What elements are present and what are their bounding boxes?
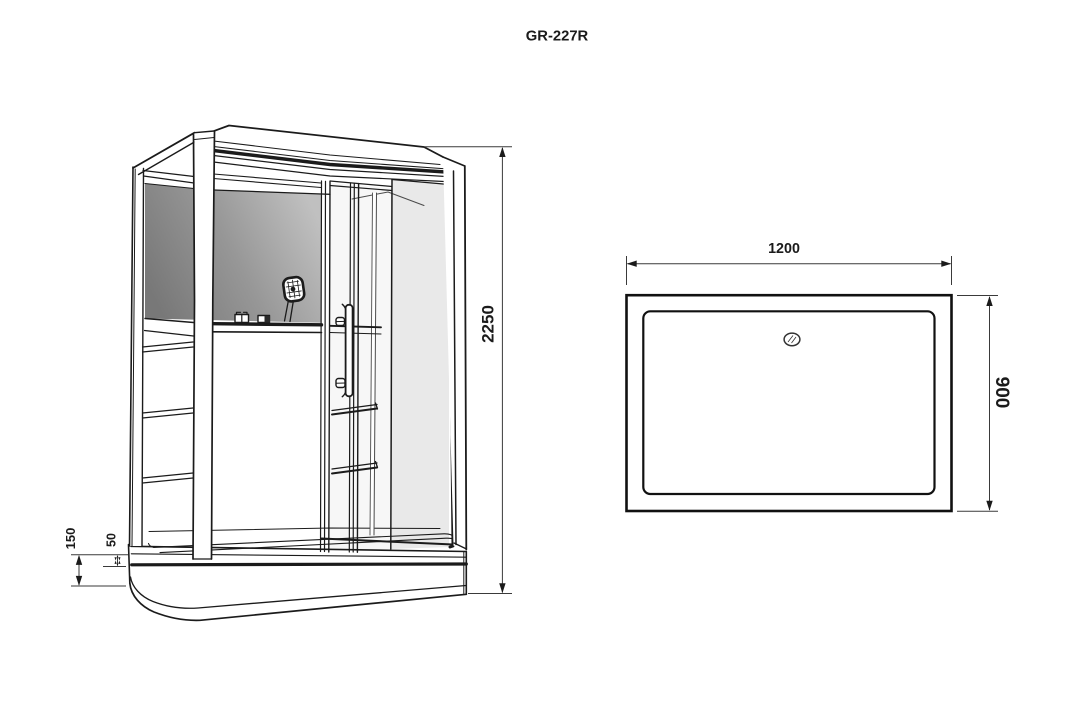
svg-text:900: 900 <box>991 377 1012 409</box>
svg-text:GR-227R: GR-227R <box>526 29 589 45</box>
svg-text:2250: 2250 <box>479 305 498 343</box>
svg-text:1200: 1200 <box>768 241 800 257</box>
svg-text:150: 150 <box>63 528 78 550</box>
svg-text:50: 50 <box>104 533 118 547</box>
